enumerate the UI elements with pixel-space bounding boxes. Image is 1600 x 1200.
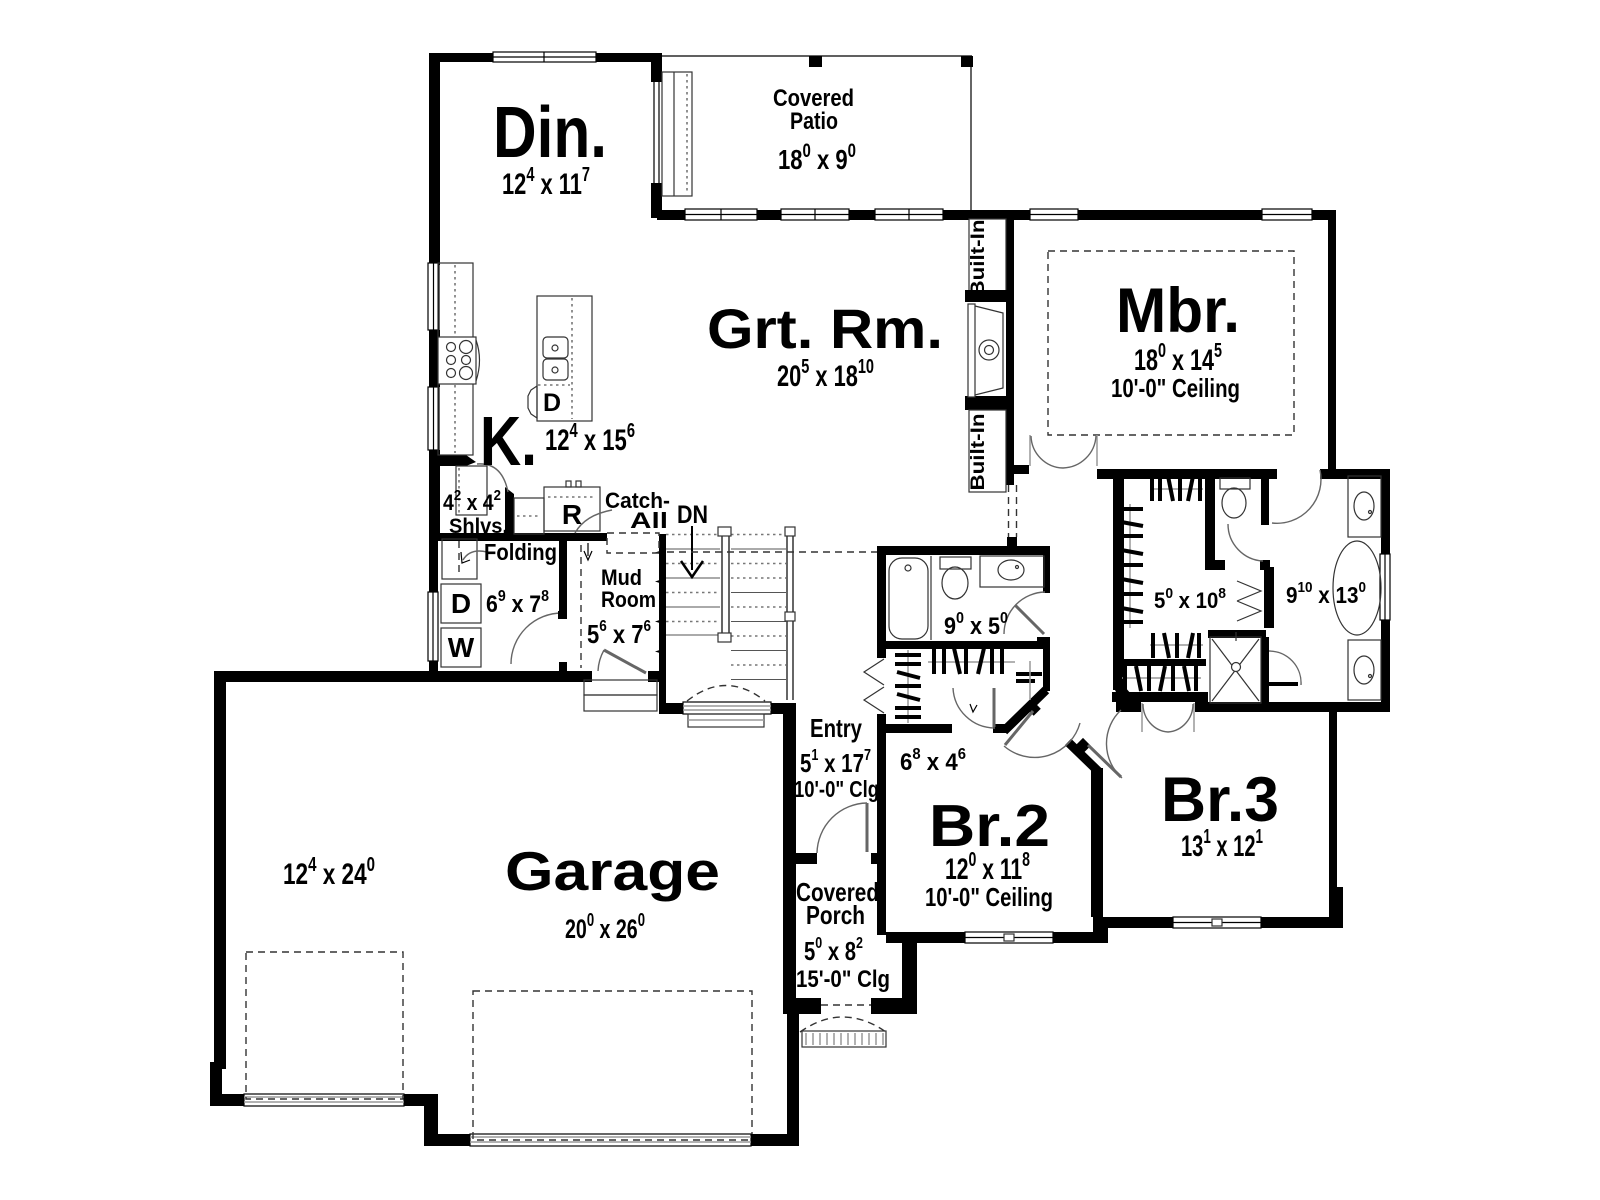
svg-text:W: W	[448, 632, 475, 663]
svg-text:Mbr.: Mbr.	[1116, 276, 1240, 346]
svg-text:Patio: Patio	[790, 108, 838, 135]
svg-text:180 x 90: 180 x 90	[778, 141, 856, 175]
svg-text:180 x 145: 180 x 145	[1134, 340, 1222, 377]
svg-text:D: D	[451, 588, 471, 619]
svg-text:Din.: Din.	[493, 93, 607, 173]
svg-text:15'-0" Clg: 15'-0" Clg	[796, 966, 890, 993]
svg-text:Garage: Garage	[505, 840, 720, 902]
svg-text:68 x 46: 68 x 46	[900, 746, 966, 776]
svg-text:90 x 50: 90 x 50	[944, 610, 1008, 640]
svg-text:50 x 82: 50 x 82	[804, 935, 863, 966]
svg-text:10'-0" Clg: 10'-0" Clg	[794, 776, 879, 802]
svg-text:Br.3: Br.3	[1161, 765, 1279, 835]
svg-text:124 x 117: 124 x 117	[502, 164, 590, 201]
svg-text:Room: Room	[601, 587, 656, 612]
svg-text:124 x 156: 124 x 156	[545, 420, 635, 457]
svg-text:Built-In: Built-In	[968, 220, 989, 297]
svg-text:69 x 78: 69 x 78	[486, 588, 549, 618]
svg-text:51 x 177: 51 x 177	[800, 747, 871, 778]
svg-text:Entry: Entry	[810, 713, 862, 743]
svg-text:50 x 108: 50 x 108	[1154, 585, 1226, 613]
svg-text:Porch: Porch	[806, 900, 865, 930]
svg-text:D: D	[543, 389, 561, 417]
svg-text:120 x 118: 120 x 118	[945, 849, 1030, 886]
svg-text:R: R	[562, 499, 582, 530]
svg-text:10'-0" Ceiling: 10'-0" Ceiling	[1111, 373, 1240, 403]
svg-text:All: All	[630, 508, 668, 533]
svg-text:Shlvs.: Shlvs.	[449, 515, 508, 538]
svg-text:10'-0" Ceiling: 10'-0" Ceiling	[925, 882, 1053, 912]
svg-text:131 x 121: 131 x 121	[1181, 826, 1263, 863]
svg-text:Built-In: Built-In	[968, 414, 989, 491]
svg-text:56 x 76: 56 x 76	[587, 618, 651, 649]
svg-text:Grt. Rm.: Grt. Rm.	[707, 297, 943, 360]
svg-text:42 x 42: 42 x 42	[443, 487, 501, 515]
svg-text:124 x 240: 124 x 240	[283, 854, 375, 891]
svg-text:K.: K.	[480, 402, 537, 480]
svg-text:Folding: Folding	[484, 539, 557, 565]
svg-text:Br.2: Br.2	[929, 793, 1050, 859]
svg-text:200 x 260: 200 x 260	[565, 910, 645, 944]
svg-text:DN: DN	[677, 501, 708, 529]
